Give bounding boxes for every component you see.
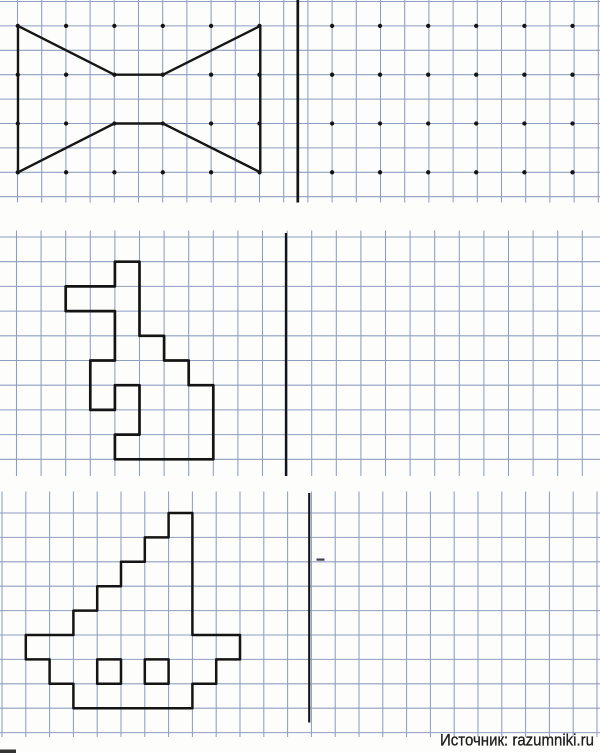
svg-text:Источник: razumniki.ru: Источник: razumniki.ru [440,732,594,750]
